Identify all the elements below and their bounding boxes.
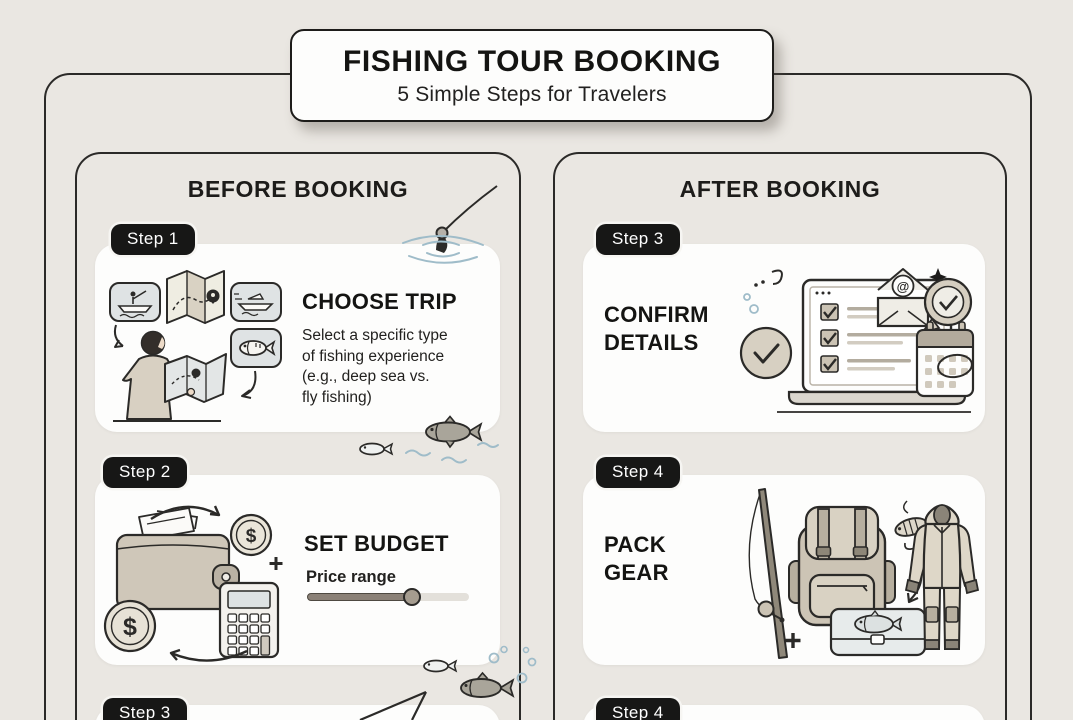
fishing-boat-icon bbox=[110, 283, 160, 321]
speedboat-icon bbox=[231, 283, 281, 321]
folded-map-icon bbox=[167, 271, 224, 323]
step2-badge: Step 2 bbox=[103, 457, 187, 488]
step1-card: Step 1 bbox=[95, 244, 500, 432]
calendar-icon bbox=[917, 322, 973, 396]
small-fish-icon bbox=[424, 661, 456, 672]
price-range-slider[interactable] bbox=[307, 593, 469, 601]
step5-partial-badge: Step 4 bbox=[596, 698, 680, 720]
price-range-slider-fill bbox=[307, 593, 412, 601]
step4-badge: Step 4 bbox=[596, 457, 680, 488]
after-booking-heading: AFTER BOOKING bbox=[555, 176, 1005, 203]
fishing-tour-infographic: BEFORE BOOKING AFTER BOOKING FISHING TOU… bbox=[0, 0, 1073, 720]
svg-text:$: $ bbox=[246, 526, 257, 547]
backpack-icon bbox=[789, 507, 895, 625]
svg-text:$: $ bbox=[123, 613, 137, 641]
plus-sparkle-icon bbox=[270, 557, 283, 570]
bottom-fish-decoration bbox=[348, 646, 538, 720]
step3-badge: Step 3 bbox=[596, 224, 680, 255]
step4-title: PACK GEAR bbox=[604, 531, 724, 587]
bubbles-icon bbox=[512, 644, 544, 692]
fishing-rod-reel-icon bbox=[749, 489, 787, 658]
bubbles-icon bbox=[490, 647, 508, 663]
confirm-details-illustration: @ bbox=[731, 260, 979, 430]
pack-gear-illustration bbox=[731, 487, 979, 663]
dollar-coin-icon: $ bbox=[231, 515, 271, 555]
dollar-coin-large-icon: $ bbox=[105, 601, 155, 651]
step5-partial-card: Step 4 bbox=[583, 705, 985, 720]
small-fish-icon bbox=[360, 444, 392, 455]
tackle-box-icon bbox=[831, 609, 925, 655]
step1-badge: Step 1 bbox=[111, 224, 195, 255]
doodle-dots-icon bbox=[744, 271, 782, 313]
gray-fish-icon bbox=[461, 673, 513, 697]
price-range-slider-thumb[interactable] bbox=[403, 588, 421, 606]
calculator-icon bbox=[220, 583, 278, 657]
price-range-label: Price range bbox=[306, 568, 396, 587]
plus-sparkle-icon bbox=[786, 633, 801, 648]
step2-title: SET BUDGET bbox=[304, 530, 449, 558]
choose-trip-illustration bbox=[103, 268, 303, 426]
step3-card: Step 3 CONFIRM DETAILS bbox=[583, 244, 985, 432]
step2-card: Step 2 $ $ bbox=[95, 475, 500, 665]
page-title: FISHING TOUR BOOKING bbox=[343, 45, 721, 79]
fish-badge-icon bbox=[231, 329, 281, 367]
step4-card: Step 4 PACK GEAR bbox=[583, 475, 985, 665]
fish-and-waves-decoration bbox=[350, 412, 502, 468]
waves-icon bbox=[406, 443, 498, 463]
gray-fish-icon bbox=[426, 417, 481, 448]
step3-partial-badge: Step 3 bbox=[103, 698, 187, 720]
svg-text:@: @ bbox=[897, 279, 910, 294]
envelope-body-icon bbox=[878, 298, 928, 326]
fishing-rod-tip-icon bbox=[360, 692, 426, 720]
step1-description: Select a specific type of fishing experi… bbox=[302, 326, 492, 408]
set-budget-illustration: $ $ bbox=[99, 493, 304, 661]
title-box: FISHING TOUR BOOKING 5 Simple Steps for … bbox=[290, 29, 774, 122]
checkmark-circle-icon bbox=[741, 328, 791, 378]
traveler-with-map-figure bbox=[113, 332, 226, 422]
step1-title: CHOOSE TRIP bbox=[302, 288, 457, 316]
page-subtitle: 5 Simple Steps for Travelers bbox=[397, 83, 666, 107]
fishing-bobber-ripples-icon bbox=[383, 182, 503, 267]
